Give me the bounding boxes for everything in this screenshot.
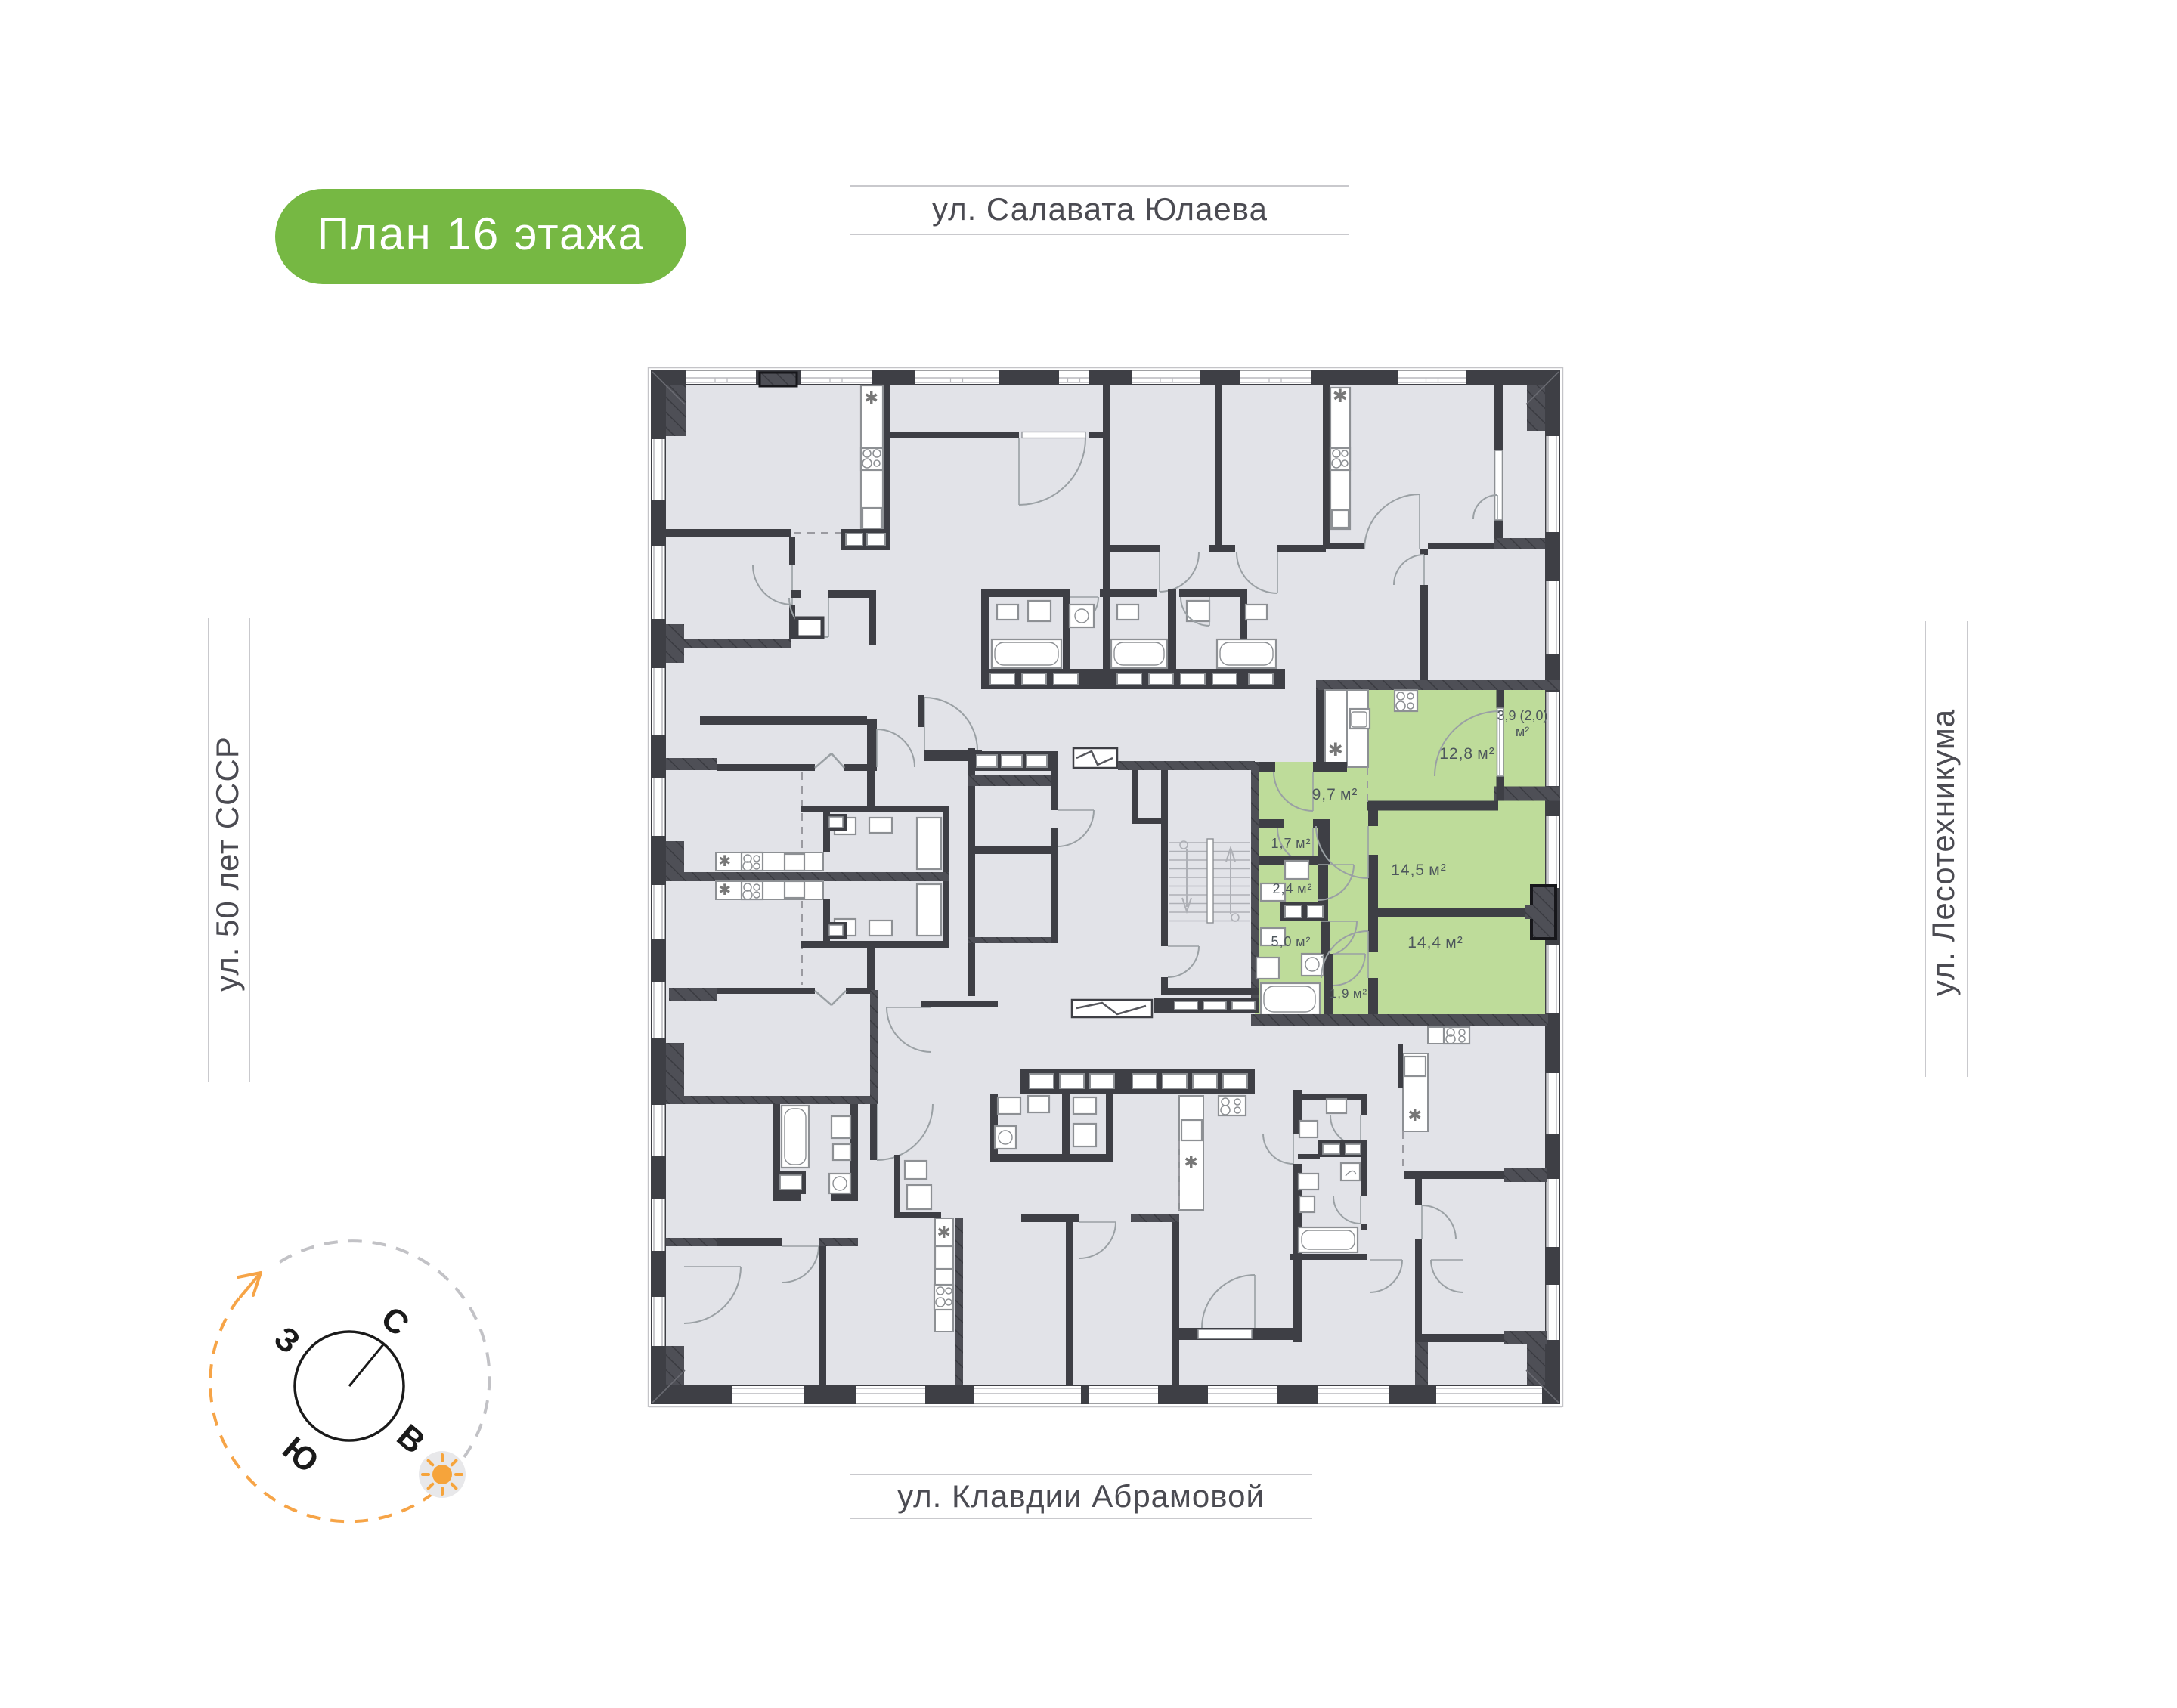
svg-text:3,9 (2,0): 3,9 (2,0) [1497,708,1547,723]
svg-text:✱: ✱ [865,388,879,407]
svg-text:В: В [390,1417,432,1461]
svg-text:9,7 м²: 9,7 м² [1312,786,1358,803]
svg-text:✱: ✱ [1408,1106,1423,1125]
svg-text:✱: ✱ [718,882,731,899]
svg-text:ул. 50 лет СССР: ул. 50 лет СССР [209,736,245,992]
svg-text:14,4 м²: 14,4 м² [1407,934,1463,951]
svg-text:12,8 м²: 12,8 м² [1439,745,1495,763]
svg-text:ул. Лесотехникума: ул. Лесотехникума [1925,709,1961,996]
svg-text:м²: м² [1516,724,1529,739]
svg-text:✱: ✱ [718,853,731,870]
svg-text:1,9 м²: 1,9 м² [1330,986,1367,1001]
svg-text:ул. Клавдии Абрамовой: ул. Клавдии Абрамовой [897,1478,1265,1514]
svg-text:✱: ✱ [1184,1153,1199,1171]
svg-text:С: С [374,1299,417,1343]
svg-text:План 16 этажа: План 16 этажа [317,209,645,259]
svg-text:14,5 м²: 14,5 м² [1391,862,1447,879]
svg-text:1,7 м²: 1,7 м² [1271,836,1311,851]
svg-text:Ю: Ю [276,1430,326,1481]
svg-text:2,4 м²: 2,4 м² [1273,881,1313,896]
svg-text:5,0 м²: 5,0 м² [1271,934,1311,949]
svg-text:З: З [267,1320,307,1361]
svg-text:✱: ✱ [1328,740,1344,760]
svg-text:✱: ✱ [1333,386,1349,407]
svg-text:✱: ✱ [937,1223,952,1242]
svg-text:ул. Салавата Юлаева: ул. Салавата Юлаева [932,191,1268,227]
